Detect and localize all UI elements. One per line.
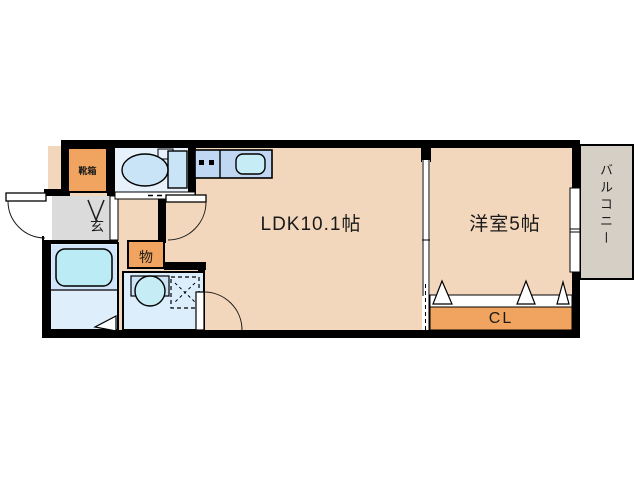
washbasin-icon bbox=[135, 276, 165, 306]
stove-burner-icon bbox=[199, 160, 204, 165]
toilet-tank bbox=[168, 151, 187, 188]
stove-burner-icon bbox=[209, 160, 214, 165]
wall-bottom bbox=[42, 330, 580, 338]
storage-cabinet bbox=[128, 241, 164, 268]
entrance-floor bbox=[48, 196, 110, 240]
bathtub-icon bbox=[56, 249, 112, 286]
front-door-opening bbox=[44, 196, 52, 240]
wall-left-lower bbox=[42, 238, 50, 338]
kitchen-sink-icon bbox=[236, 154, 265, 174]
wall-partition-top-stub bbox=[421, 148, 431, 162]
front-door-leaf bbox=[6, 193, 46, 201]
sliding-window bbox=[570, 188, 580, 272]
entrance-hall-sliding-door bbox=[110, 196, 118, 240]
toilet-icon bbox=[122, 154, 168, 186]
wall-entrance-step bbox=[44, 189, 70, 196]
wall-top bbox=[62, 140, 580, 148]
washroom-door-leaf bbox=[196, 292, 204, 330]
shoe-cabinet bbox=[68, 148, 107, 192]
closet-bar bbox=[430, 307, 572, 330]
floorplan: LDK10.1帖 洋室5帖 バルコニー CL 玄 物 靴箱 bbox=[0, 0, 638, 480]
wall-right-upper bbox=[572, 140, 580, 188]
hall-door-leaf bbox=[166, 195, 206, 202]
wall-shoebox-toilet-divider bbox=[107, 140, 115, 198]
front-door-arc bbox=[8, 201, 45, 238]
floorplan-drawing bbox=[0, 0, 638, 480]
balcony-floor bbox=[580, 145, 633, 279]
wall-right-lower bbox=[572, 272, 580, 338]
